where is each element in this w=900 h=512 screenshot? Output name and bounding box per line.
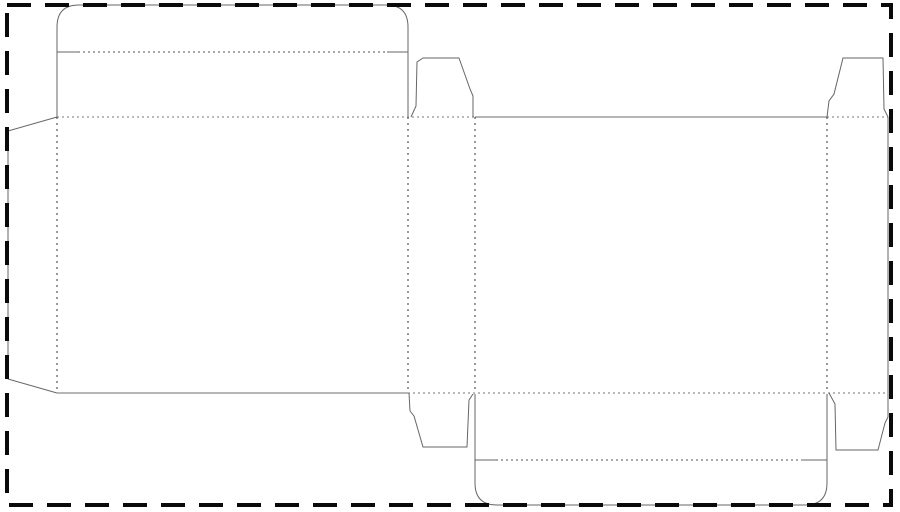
dieline-sheet <box>0 0 900 512</box>
dieline-svg <box>0 0 900 512</box>
bottom-lid-outline <box>475 394 827 505</box>
dust-flap-bottom-right <box>829 393 888 450</box>
dust-flap-top-middle <box>411 58 473 117</box>
glue-flap-outline <box>8 117 57 393</box>
dust-flap-bottom-middle <box>409 393 473 447</box>
dust-flap-top-right <box>827 58 888 117</box>
top-lid-outline <box>57 5 408 117</box>
sheet-cut-border <box>7 5 891 505</box>
